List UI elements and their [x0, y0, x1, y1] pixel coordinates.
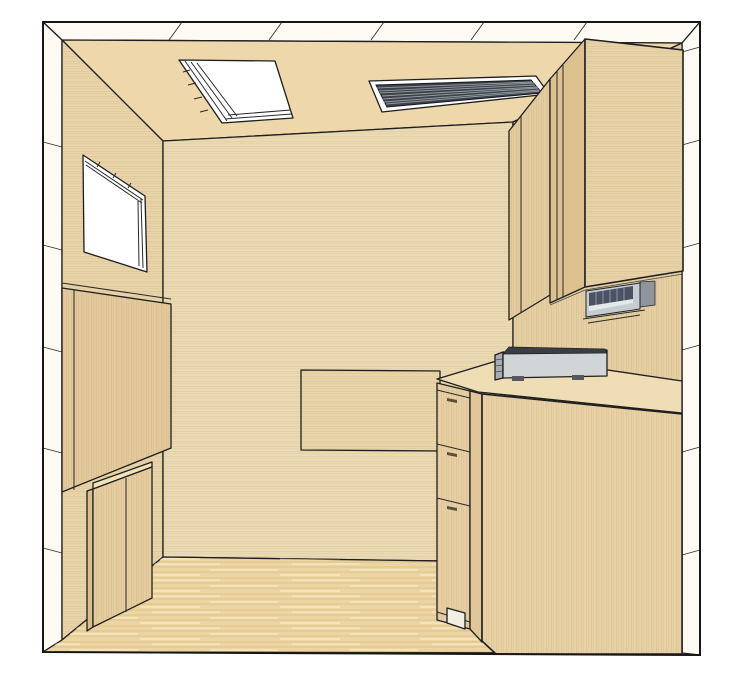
drawer-unit-front	[437, 383, 470, 629]
left-low-cabinet-doors	[93, 467, 152, 627]
shell-right-band	[682, 22, 700, 655]
shell-left-band	[43, 22, 62, 652]
counter-device	[495, 347, 607, 381]
left-low-cabinet-side	[87, 489, 93, 631]
drawer-unit-stile	[470, 391, 482, 642]
counter-device-foot-right	[572, 375, 584, 380]
scene-3d-room	[0, 0, 743, 681]
wall-table	[301, 370, 440, 451]
upper-cabinet-large	[550, 39, 683, 305]
upper-cabinet-large-door	[585, 39, 683, 287]
drawer-unit	[437, 383, 482, 642]
upper-cabinet-large-side	[550, 39, 585, 303]
wall-table-front	[301, 370, 440, 451]
counter-device-foot-left	[512, 376, 524, 381]
base-cabinet-panel-face	[482, 394, 682, 654]
under-cabinet-appliance-bracket	[640, 281, 655, 307]
base-cabinet-panel	[482, 394, 682, 654]
room-render-canvas	[0, 0, 743, 681]
